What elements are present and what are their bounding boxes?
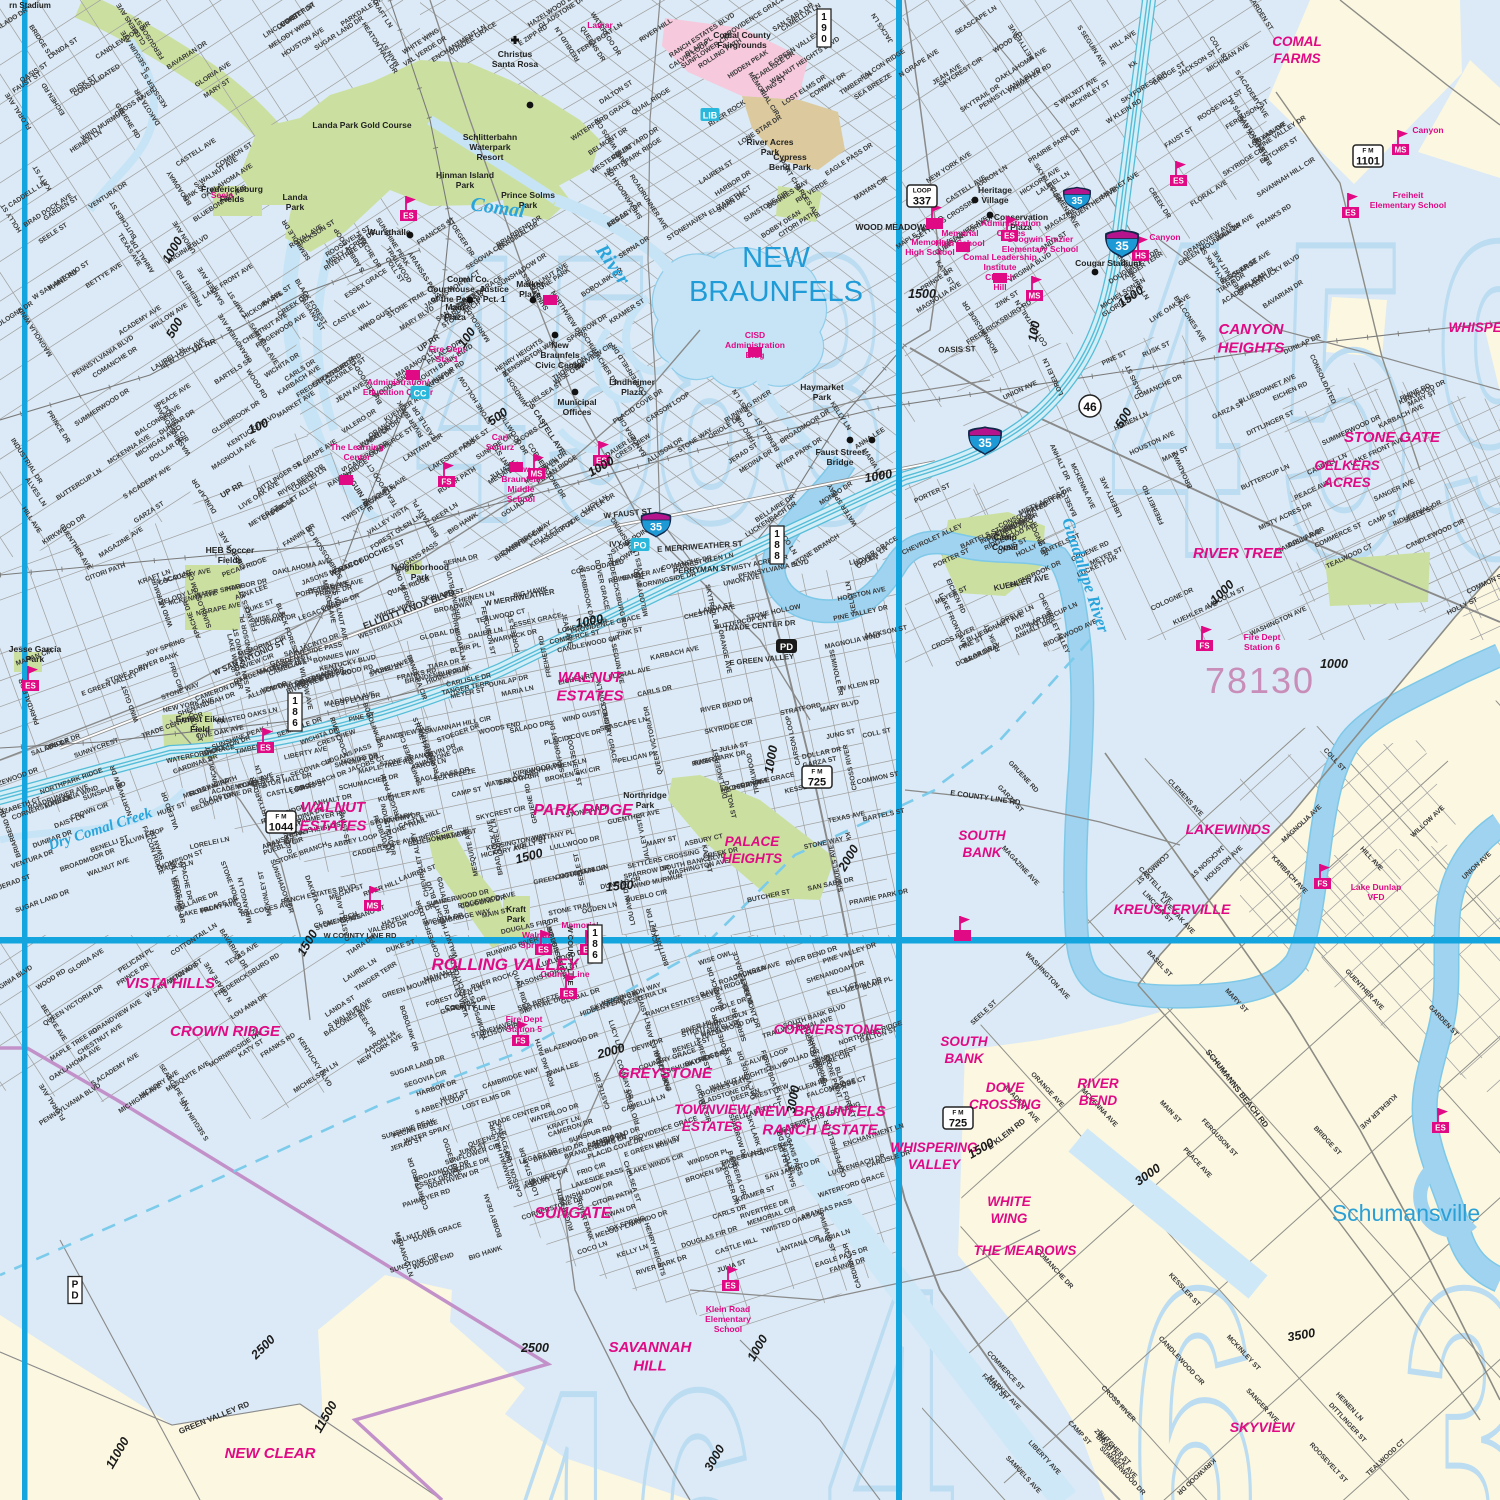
svg-text:1000: 1000 bbox=[1320, 657, 1348, 671]
svg-text:MS: MS bbox=[367, 902, 380, 911]
svg-text:1: 1 bbox=[592, 928, 598, 939]
svg-text:New: New bbox=[551, 340, 569, 350]
svg-text:Fields: Fields bbox=[218, 555, 243, 565]
svg-text:High School: High School bbox=[905, 247, 955, 257]
svg-text:P: P bbox=[72, 1280, 79, 1291]
svg-text:RIVER TREE: RIVER TREE bbox=[1193, 545, 1284, 562]
svg-text:Courthouse, Justice: Courthouse, Justice bbox=[427, 284, 509, 294]
svg-text:PARK RIDGE: PARK RIDGE bbox=[533, 802, 634, 819]
svg-text:Jesse Garcia: Jesse Garcia bbox=[9, 644, 62, 654]
svg-text:FS: FS bbox=[1317, 880, 1328, 889]
svg-text:6: 6 bbox=[292, 718, 298, 729]
svg-text:Comal County: Comal County bbox=[713, 30, 771, 40]
svg-text:Braunfels: Braunfels bbox=[540, 350, 579, 360]
svg-text:Sta. 1: Sta. 1 bbox=[436, 354, 459, 364]
svg-text:Klein Road: Klein Road bbox=[706, 1304, 750, 1314]
svg-text:Market: Market bbox=[516, 279, 544, 289]
svg-text:WALNUT: WALNUT bbox=[301, 799, 367, 816]
svg-text:35: 35 bbox=[1115, 239, 1129, 253]
svg-text:4: 4 bbox=[493, 1301, 619, 1500]
svg-text:FS: FS bbox=[515, 1037, 526, 1046]
svg-text:Plaza: Plaza bbox=[621, 387, 643, 397]
svg-text:MS: MS bbox=[531, 470, 544, 479]
svg-text:Park: Park bbox=[507, 914, 526, 924]
svg-text:ESTATES: ESTATES bbox=[300, 818, 367, 835]
svg-text:ES: ES bbox=[563, 990, 574, 999]
svg-text:Park: Park bbox=[636, 800, 655, 810]
svg-text:725: 725 bbox=[808, 777, 826, 789]
svg-text:rn Stadium: rn Stadium bbox=[9, 1, 51, 10]
svg-text:Santa Rosa: Santa Rosa bbox=[492, 59, 539, 69]
svg-text:FARMS: FARMS bbox=[1273, 51, 1320, 66]
svg-text:D: D bbox=[71, 1291, 78, 1302]
svg-text:NEW: NEW bbox=[742, 242, 810, 274]
svg-text:Field: Field bbox=[190, 724, 210, 734]
svg-text:CISD: CISD bbox=[745, 330, 765, 340]
svg-text:ES: ES bbox=[1435, 1124, 1446, 1133]
svg-text:FS: FS bbox=[1199, 642, 1210, 651]
svg-text:Center: Center bbox=[344, 452, 372, 462]
svg-text:GREYSTONE: GREYSTONE bbox=[618, 1065, 713, 1082]
svg-text:HS: HS bbox=[1135, 252, 1147, 261]
svg-text:725: 725 bbox=[949, 1118, 967, 1130]
svg-text:VISTA HILLS: VISTA HILLS bbox=[125, 975, 215, 992]
svg-text:OELKERS: OELKERS bbox=[1314, 458, 1379, 473]
svg-text:Elementary: Elementary bbox=[705, 1314, 751, 1324]
svg-text:RIVER: RIVER bbox=[1077, 1076, 1119, 1091]
svg-text:Heritage: Heritage bbox=[978, 185, 1012, 195]
svg-text:ESTATES: ESTATES bbox=[682, 1119, 742, 1134]
svg-text:CROWN RIDGE: CROWN RIDGE bbox=[170, 1023, 281, 1040]
svg-text:Hill: Hill bbox=[993, 282, 1006, 292]
svg-text:MS: MS bbox=[1029, 292, 1042, 301]
svg-text:Comal Co.: Comal Co. bbox=[447, 274, 489, 284]
svg-text:WALNUT: WALNUT bbox=[558, 669, 624, 686]
svg-text:ES: ES bbox=[725, 1282, 736, 1291]
svg-text:Haymarket: Haymarket bbox=[800, 382, 844, 392]
svg-text:8: 8 bbox=[774, 540, 780, 551]
svg-text:FS: FS bbox=[441, 478, 452, 487]
svg-text:Seele: Seele bbox=[211, 190, 233, 200]
svg-text:Municipal: Municipal bbox=[557, 397, 596, 407]
svg-text:ES: ES bbox=[403, 212, 414, 221]
svg-text:1500: 1500 bbox=[908, 287, 936, 301]
svg-text:SOUTH: SOUTH bbox=[940, 1034, 988, 1049]
svg-text:OASIS ST: OASIS ST bbox=[938, 344, 976, 354]
svg-text:COUNTY LINE: COUNTY LINE bbox=[445, 1003, 496, 1012]
svg-text:Park: Park bbox=[286, 202, 305, 212]
svg-text:WING: WING bbox=[991, 1211, 1028, 1226]
svg-text:Waterpark: Waterpark bbox=[469, 142, 511, 152]
svg-text:BRAUNFELS: BRAUNFELS bbox=[689, 276, 863, 308]
svg-text:8: 8 bbox=[592, 939, 598, 950]
svg-text:2500: 2500 bbox=[520, 1341, 549, 1355]
svg-text:Administration/: Administration/ bbox=[367, 377, 430, 387]
svg-text:Lamar: Lamar bbox=[587, 20, 613, 30]
svg-text:Fairgrounds: Fairgrounds bbox=[717, 40, 767, 50]
svg-text:WOOD MEADOWS: WOOD MEADOWS bbox=[855, 222, 930, 232]
svg-text:337: 337 bbox=[913, 196, 931, 208]
svg-text:CC: CC bbox=[414, 389, 427, 399]
svg-text:Faust Street: Faust Street bbox=[815, 447, 864, 457]
svg-text:LOOP: LOOP bbox=[913, 188, 932, 195]
svg-text:HEIGHTS: HEIGHTS bbox=[1218, 340, 1285, 357]
svg-text:VALLEY: VALLEY bbox=[908, 1157, 962, 1172]
svg-text:Wursthalle: Wursthalle bbox=[367, 227, 411, 237]
svg-text:COMAL: COMAL bbox=[1272, 34, 1322, 49]
svg-text:SUNGATE: SUNGATE bbox=[534, 1205, 612, 1222]
svg-text:Bend Park: Bend Park bbox=[769, 162, 811, 172]
svg-text:WHITE: WHITE bbox=[987, 1194, 1031, 1209]
svg-text:Lake Dunlap: Lake Dunlap bbox=[1351, 882, 1402, 892]
svg-text:Camp: Camp bbox=[993, 532, 1017, 542]
svg-text:Park: Park bbox=[519, 200, 538, 210]
svg-text:1: 1 bbox=[821, 12, 827, 23]
svg-text:8: 8 bbox=[774, 551, 780, 562]
svg-text:THE MEADOWS: THE MEADOWS bbox=[974, 1243, 1077, 1258]
svg-text:Christus: Christus bbox=[498, 49, 533, 59]
svg-text:Plaza: Plaza bbox=[519, 289, 541, 299]
svg-text:Canyon: Canyon bbox=[1412, 125, 1443, 135]
svg-text:9: 9 bbox=[821, 23, 827, 34]
svg-text:Middle: Middle bbox=[508, 484, 535, 494]
svg-text:Main: Main bbox=[445, 302, 464, 312]
svg-text:Ernest Eikel: Ernest Eikel bbox=[176, 714, 225, 724]
svg-text:ES: ES bbox=[538, 946, 549, 955]
svg-text:1: 1 bbox=[292, 696, 298, 707]
svg-text:HEIGHTS: HEIGHTS bbox=[722, 851, 782, 866]
svg-text:Schlitterbahn: Schlitterbahn bbox=[463, 132, 517, 142]
svg-text:1044: 1044 bbox=[269, 822, 294, 834]
svg-text:TOWNVIEW: TOWNVIEW bbox=[674, 1102, 751, 1117]
svg-text:F M: F M bbox=[811, 769, 822, 776]
svg-text:LAKEWINDS: LAKEWINDS bbox=[1186, 821, 1271, 837]
svg-text:ES: ES bbox=[1173, 177, 1184, 186]
svg-text:Park: Park bbox=[26, 654, 45, 664]
svg-text:Park: Park bbox=[456, 180, 475, 190]
svg-text:Bridge: Bridge bbox=[827, 457, 854, 467]
svg-text:8: 8 bbox=[292, 707, 298, 718]
svg-text:Park: Park bbox=[761, 147, 780, 157]
svg-text:SOUTH: SOUTH bbox=[958, 828, 1006, 843]
svg-text:ES: ES bbox=[1004, 232, 1015, 241]
svg-text:Village: Village bbox=[981, 195, 1009, 205]
svg-text:Plaza: Plaza bbox=[444, 312, 466, 322]
svg-text:Memorial: Memorial bbox=[941, 228, 978, 238]
svg-text:Landa: Landa bbox=[282, 192, 307, 202]
svg-text:Station 6: Station 6 bbox=[1244, 642, 1280, 652]
svg-text:6: 6 bbox=[592, 950, 598, 961]
svg-text:BEND: BEND bbox=[1079, 1093, 1118, 1108]
svg-text:School: School bbox=[714, 1324, 742, 1334]
svg-text:SAVANNAH: SAVANNAH bbox=[609, 1339, 693, 1356]
svg-text:Park: Park bbox=[411, 572, 430, 582]
svg-text:ES: ES bbox=[1345, 209, 1356, 218]
svg-text:Comal: Comal bbox=[992, 542, 1018, 552]
svg-text:35: 35 bbox=[650, 521, 662, 533]
svg-text:78130: 78130 bbox=[1205, 660, 1315, 701]
svg-text:CANYON: CANYON bbox=[1218, 321, 1284, 338]
svg-text:ES: ES bbox=[25, 682, 36, 691]
svg-text:WHISPER: WHISPER bbox=[1448, 320, 1500, 335]
svg-text:Schumansville: Schumansville bbox=[1332, 1200, 1480, 1226]
svg-text:Resort: Resort bbox=[477, 152, 504, 162]
svg-text:Institute: Institute bbox=[983, 262, 1016, 272]
svg-text:VFD: VFD bbox=[1368, 892, 1385, 902]
svg-text:46: 46 bbox=[1083, 400, 1097, 414]
svg-text:WHISPERING: WHISPERING bbox=[890, 1140, 978, 1155]
svg-text:Carl: Carl bbox=[492, 432, 509, 442]
svg-text:Fire Dept: Fire Dept bbox=[1244, 632, 1281, 642]
svg-text:Comal Leadership: Comal Leadership bbox=[963, 252, 1037, 262]
svg-text:SKYVIEW: SKYVIEW bbox=[1230, 1419, 1296, 1435]
svg-text:MS: MS bbox=[1395, 146, 1408, 155]
svg-text:1101: 1101 bbox=[1356, 156, 1380, 168]
svg-text:1500: 1500 bbox=[605, 878, 634, 894]
svg-text:Cougar Stadium: Cougar Stadium bbox=[1075, 258, 1141, 268]
svg-text:PO: PO bbox=[633, 541, 646, 551]
svg-text:CROSSING: CROSSING bbox=[969, 1097, 1042, 1112]
svg-text:Prince Solms: Prince Solms bbox=[501, 190, 555, 200]
svg-text:0: 0 bbox=[821, 34, 827, 45]
svg-text:Northridge: Northridge bbox=[623, 790, 667, 800]
svg-text:Schurz: Schurz bbox=[486, 442, 514, 452]
svg-text:STONE GATE: STONE GATE bbox=[1344, 429, 1441, 446]
svg-text:RANCH ESTATE: RANCH ESTATE bbox=[762, 1122, 878, 1139]
svg-text:CORNERSTONE: CORNERSTONE bbox=[774, 1021, 883, 1037]
svg-text:1: 1 bbox=[774, 529, 780, 540]
svg-text:F M: F M bbox=[952, 1110, 963, 1117]
svg-text:35: 35 bbox=[1071, 196, 1083, 207]
svg-text:DOVE: DOVE bbox=[986, 1080, 1025, 1095]
svg-text:PD: PD bbox=[780, 642, 793, 653]
svg-text:35: 35 bbox=[978, 436, 992, 450]
svg-text:ESTATES: ESTATES bbox=[557, 688, 624, 705]
svg-text:Park: Park bbox=[813, 392, 832, 402]
svg-text:ES: ES bbox=[260, 744, 271, 753]
svg-text:BANK: BANK bbox=[945, 1051, 985, 1066]
svg-text:Civic Center: Civic Center bbox=[535, 360, 585, 370]
svg-text:Fire Dept: Fire Dept bbox=[506, 1014, 543, 1024]
svg-text:W COUNTY LINE RD: W COUNTY LINE RD bbox=[324, 931, 397, 940]
svg-text:Offices: Offices bbox=[563, 407, 592, 417]
svg-text:NEW BRAUNFELS: NEW BRAUNFELS bbox=[754, 1103, 886, 1120]
svg-text:River Acres: River Acres bbox=[747, 137, 794, 147]
svg-text:Canyon: Canyon bbox=[1149, 232, 1180, 242]
svg-text:HILL: HILL bbox=[633, 1358, 666, 1375]
svg-text:ACRES: ACRES bbox=[1322, 475, 1370, 490]
svg-text:BANK: BANK bbox=[963, 845, 1003, 860]
svg-text:Landa Park Gold Course: Landa Park Gold Course bbox=[312, 120, 411, 130]
svg-text:NEW CLEAR: NEW CLEAR bbox=[225, 1445, 316, 1462]
svg-text:HEB Soccer: HEB Soccer bbox=[206, 545, 255, 555]
svg-text:Lindheimer: Lindheimer bbox=[609, 377, 656, 387]
svg-text:KREUSLERVILLE: KREUSLERVILLE bbox=[1114, 901, 1231, 917]
svg-text:F M: F M bbox=[1362, 148, 1373, 155]
svg-text:Hinman Island: Hinman Island bbox=[436, 170, 494, 180]
svg-text:PALACE: PALACE bbox=[725, 834, 780, 849]
svg-text:Kraft: Kraft bbox=[506, 904, 526, 914]
svg-text:School: School bbox=[507, 494, 535, 504]
svg-text:LIB: LIB bbox=[703, 111, 718, 121]
svg-text:F M: F M bbox=[275, 814, 286, 821]
svg-text:Neighborhood: Neighborhood bbox=[391, 562, 449, 572]
svg-text:The Learning: The Learning bbox=[330, 442, 383, 452]
svg-text:Elementary School: Elementary School bbox=[1370, 200, 1447, 210]
svg-text:Freiheit: Freiheit bbox=[1393, 190, 1424, 200]
